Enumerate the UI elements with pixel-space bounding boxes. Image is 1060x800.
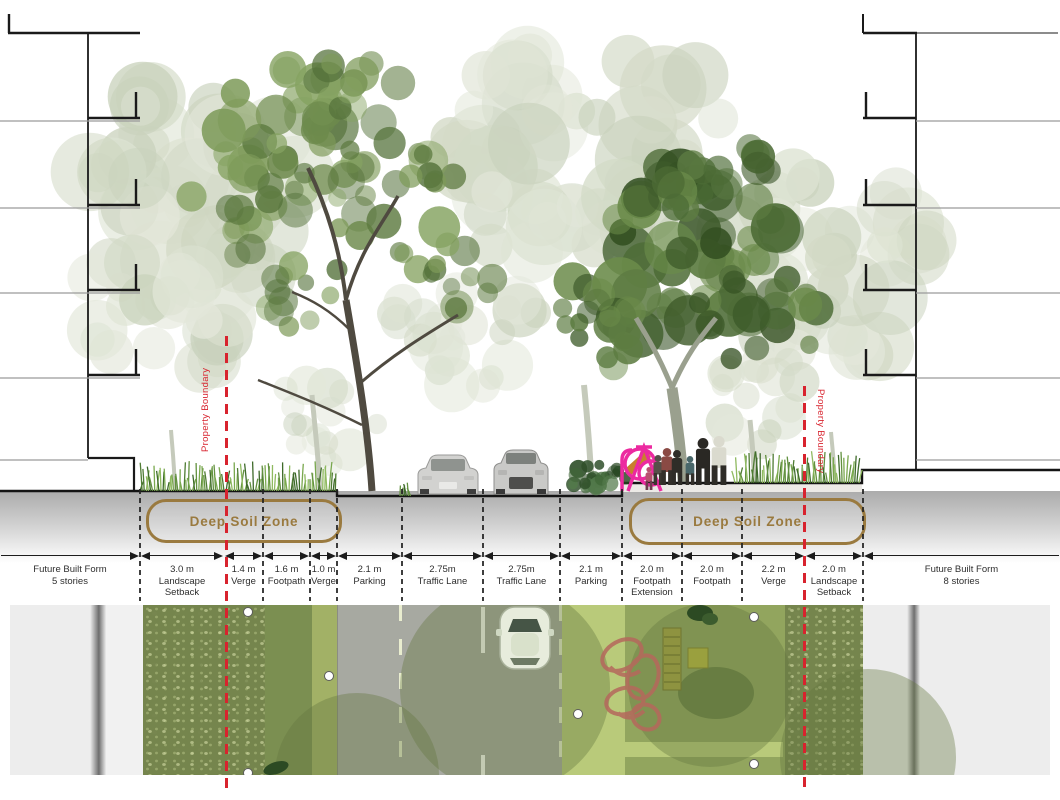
deep-soil-zone-label-left: Deep Soil Zone <box>146 499 342 543</box>
dimension-label: Landscape Setback <box>806 576 862 598</box>
dimension-value: 1.4 m <box>232 564 256 575</box>
plan-view <box>10 605 1050 775</box>
dimension-label: Parking <box>561 576 621 587</box>
arrowhead-left <box>623 552 632 560</box>
dimension-label: Footpath <box>264 576 309 587</box>
dimension-value: 1.6 m <box>275 564 299 575</box>
dimension-label: Verge <box>309 576 339 587</box>
plan-overlay-graphics <box>10 605 1050 775</box>
dimension-value: 2.0 m <box>640 564 664 575</box>
plan-bush <box>687 605 718 625</box>
dimension-value: 2.1 m <box>358 564 382 575</box>
arrowhead-right <box>672 552 681 560</box>
dimension-label: Traffic Lane <box>408 576 478 587</box>
arrowhead-left <box>743 552 752 560</box>
dimension-value: 2.0 m <box>822 564 846 575</box>
dimension-value: 3.0 m <box>170 564 194 575</box>
dimension-label: Parking <box>338 576 401 587</box>
dimension-segment: 2.1 mParking <box>338 551 401 561</box>
dimension-value: 1.0 m <box>312 564 336 575</box>
arrowhead-right <box>300 552 309 560</box>
arrowhead-right <box>473 552 482 560</box>
arrowhead-left <box>338 552 347 560</box>
future-built-form-right: Future Built Form 8 stories <box>863 564 1060 588</box>
dimension-segment <box>1 551 139 561</box>
future-built-form-right-line2: 8 stories <box>863 576 1060 588</box>
property-boundary-line-right <box>803 386 806 788</box>
arrowhead-left <box>403 552 412 560</box>
dimension-label: Verge <box>225 576 262 587</box>
arrowhead-right <box>214 552 223 560</box>
dimension-label: Verge <box>743 576 804 587</box>
arrowhead-right <box>327 552 336 560</box>
dimension-segment: 2.75mTraffic Lane <box>403 551 482 561</box>
future-built-form-left-line1: Future Built Form <box>0 564 140 576</box>
boundary-dash <box>482 489 484 601</box>
arrowhead-left <box>683 552 692 560</box>
property-boundary-label-left: Property Boundary <box>200 368 211 452</box>
arrowhead-right <box>550 552 559 560</box>
property-boundary-line-left <box>225 336 228 788</box>
future-built-form-left-line2: 5 stories <box>0 576 140 588</box>
arrowhead-right <box>612 552 621 560</box>
dimension-segment: 1.0 mVerge <box>311 551 336 561</box>
streetscape-section-diagram: Deep Soil Zone Deep Soil Zone 3.0 mLands… <box>0 0 1060 800</box>
future-built-form-right-line1: Future Built Form <box>863 564 1060 576</box>
plan-car <box>496 607 554 669</box>
plan-boardwalk <box>663 628 681 690</box>
arrowhead-left <box>484 552 493 560</box>
arrowhead-left <box>311 552 320 560</box>
dimension-value: 2.0 m <box>700 564 724 575</box>
dimension-value: 2.75m <box>429 564 455 575</box>
arrowhead-right <box>732 552 741 560</box>
dimension-segment: 2.0 mLandscape Setback <box>806 551 862 561</box>
boundary-dash <box>401 489 403 601</box>
dimension-segment: 1.4 mVerge <box>225 551 262 561</box>
plan-leaf <box>262 758 290 775</box>
property-boundary-label-right: Property Boundary <box>815 389 826 473</box>
dimension-segment: 1.6 mFootpath <box>264 551 309 561</box>
dimension-value: 2.1 m <box>579 564 603 575</box>
dimension-value: 2.75m <box>508 564 534 575</box>
dimension-label: Footpath Extension <box>623 576 681 598</box>
dimension-segment: 2.75mTraffic Lane <box>484 551 559 561</box>
arrowhead-right <box>853 552 862 560</box>
car-section-right <box>494 450 548 494</box>
dimension-segment: 2.1 mParking <box>561 551 621 561</box>
dimension-label: Traffic Lane <box>487 576 557 587</box>
arrowhead-left <box>561 552 570 560</box>
plan-playground-loops <box>597 633 664 735</box>
arrowhead-left <box>141 552 150 560</box>
dimension-label: Landscape Setback <box>147 576 217 598</box>
grass-left-verge <box>140 461 336 491</box>
dimension-segment: 2.2 mVerge <box>743 551 804 561</box>
dimension-label: Footpath <box>683 576 741 587</box>
deep-soil-zone-label-right: Deep Soil Zone <box>629 498 866 545</box>
car-section-left <box>418 455 478 494</box>
future-built-form-left: Future Built Form 5 stories <box>0 564 140 588</box>
plan-table-square <box>688 648 708 668</box>
dimension-segment: 2.0 mFootpath <box>683 551 741 561</box>
arrowhead-left <box>264 552 273 560</box>
dimension-value: 2.2 m <box>762 564 786 575</box>
dimension-segment: 2.0 mFootpath Extension <box>623 551 681 561</box>
dimension-segment: 3.0 mLandscape Setback <box>141 551 223 561</box>
arrowhead-right <box>392 552 401 560</box>
dimension-segment <box>864 551 1059 561</box>
arrowhead-left <box>864 552 873 560</box>
arrowhead-right <box>253 552 262 560</box>
arrowhead-left <box>806 552 815 560</box>
arrowhead-right <box>130 552 139 560</box>
